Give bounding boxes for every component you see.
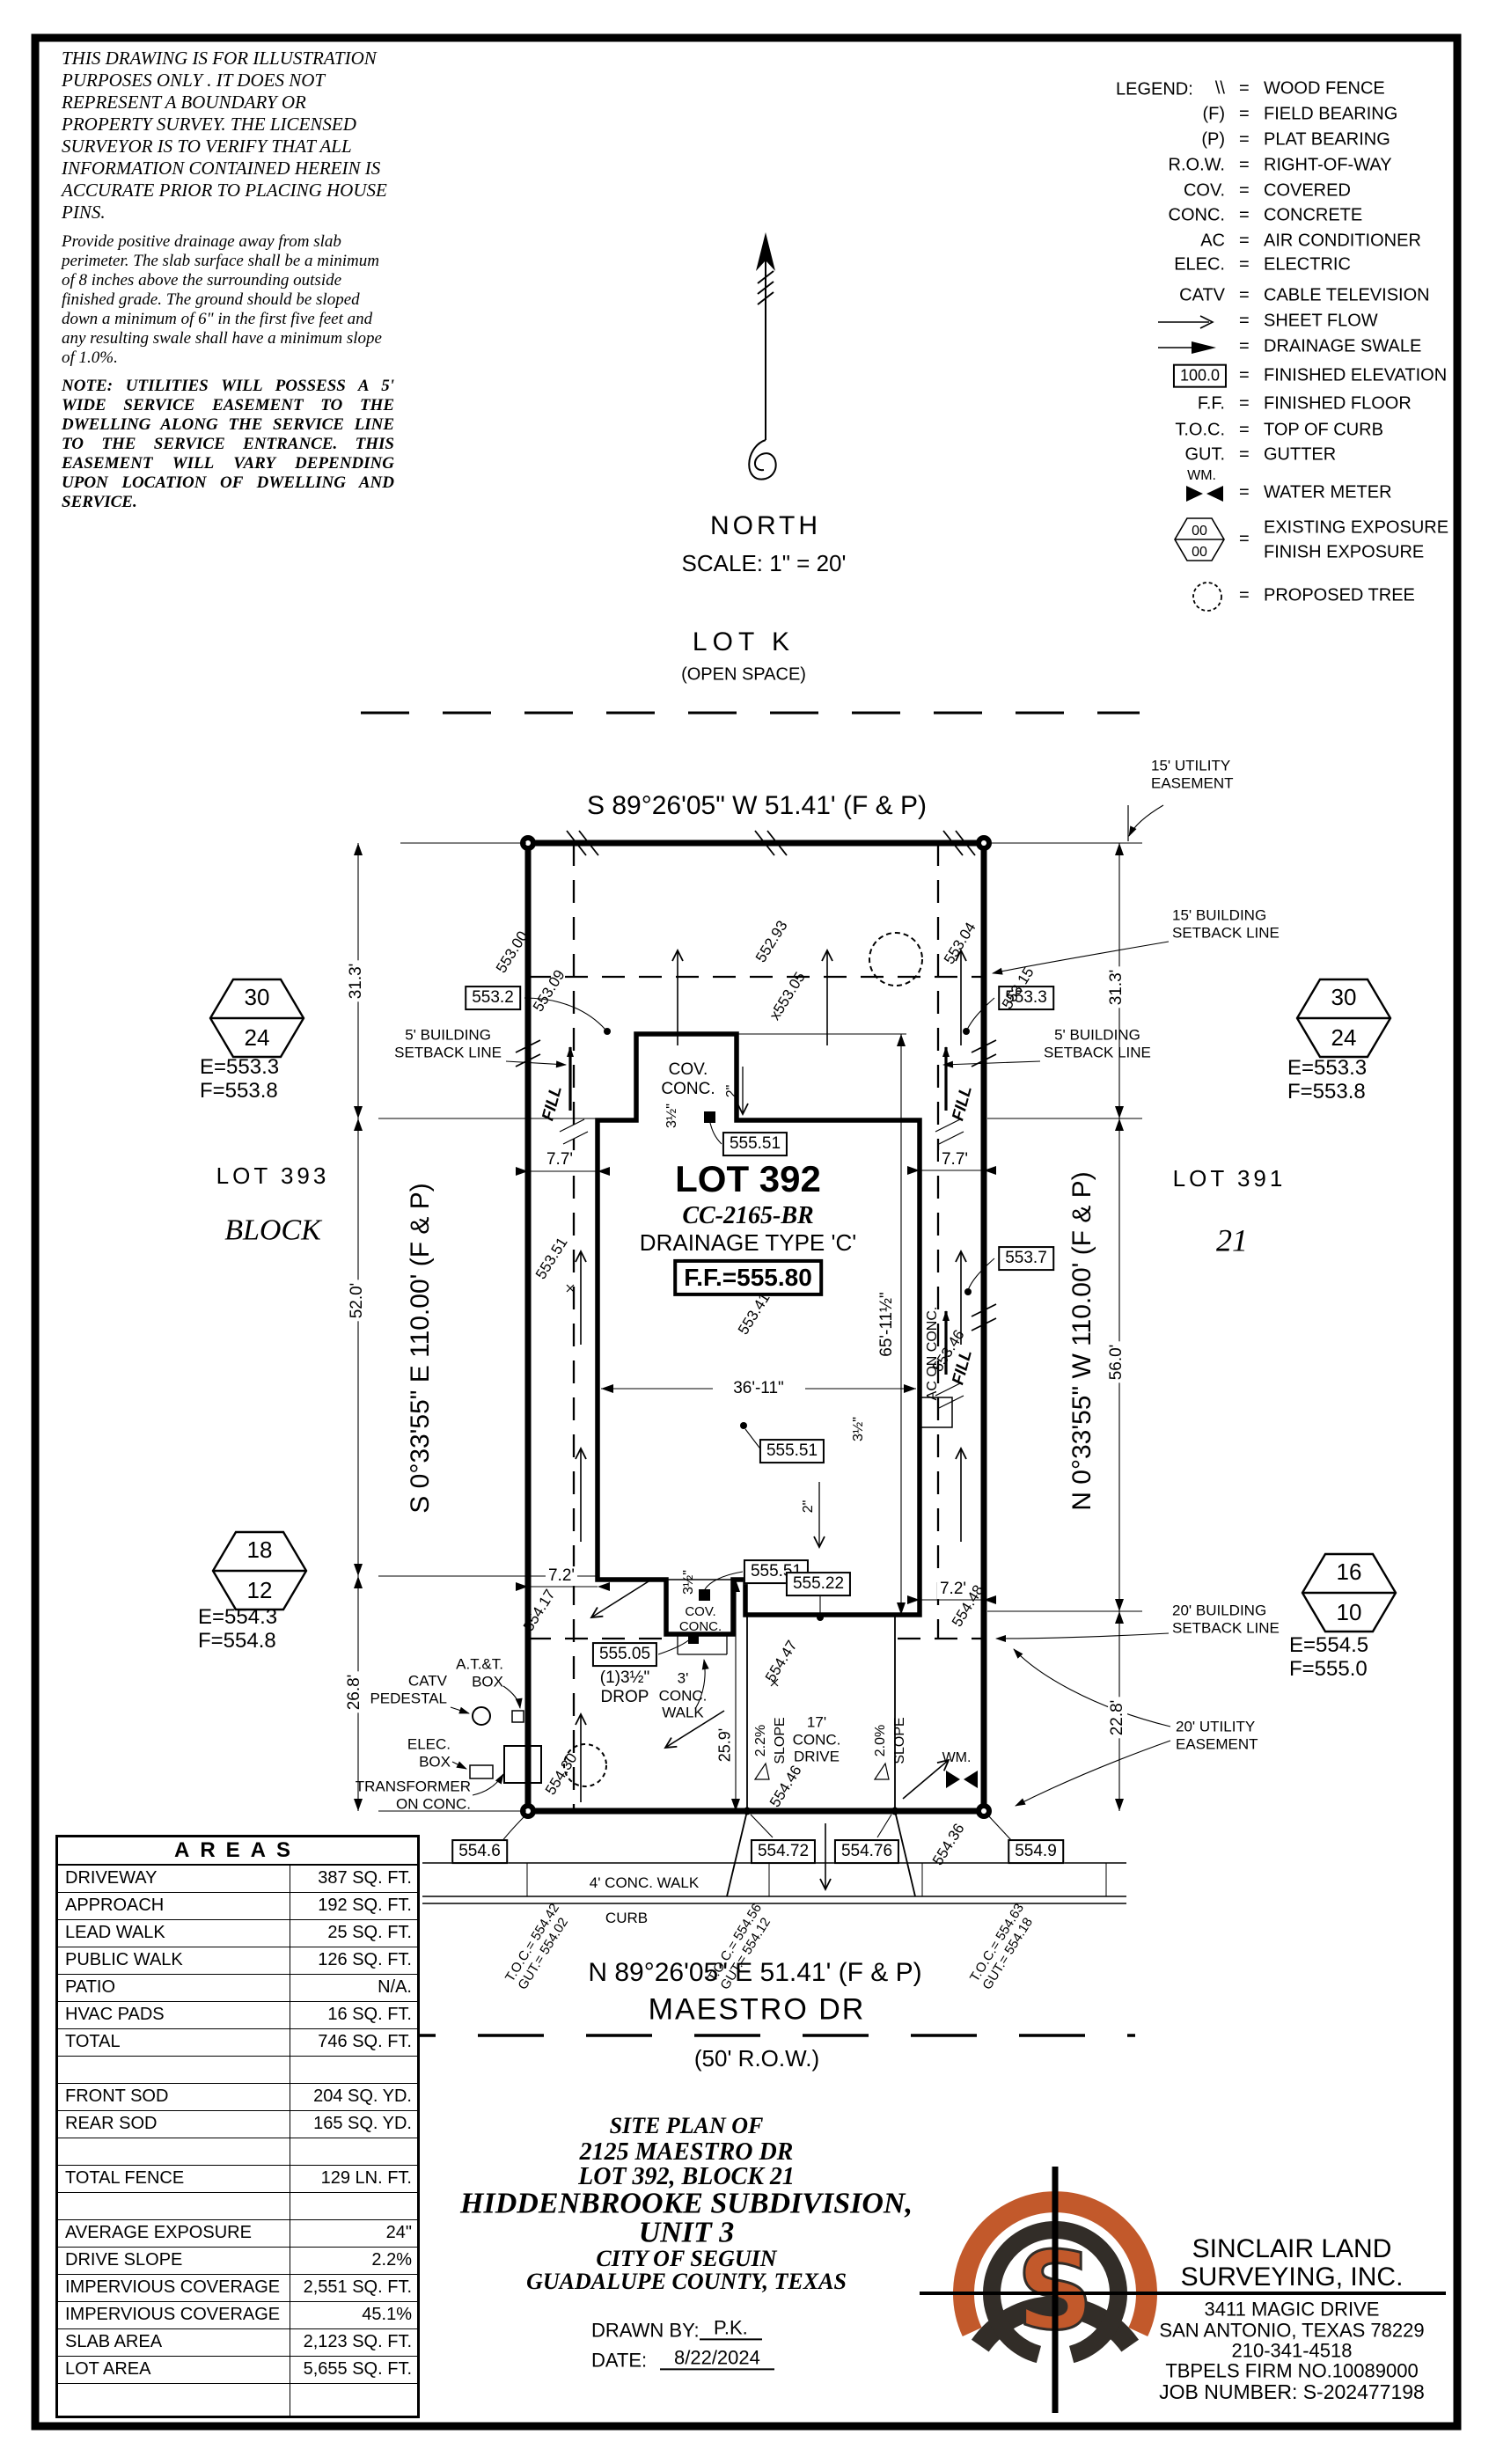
fill-label: FILL — [949, 1084, 976, 1123]
drainage-type: DRAINAGE TYPE 'C' — [640, 1230, 856, 1257]
callout-line: ELEC. — [407, 1735, 451, 1753]
block-label: BLOCK — [224, 1213, 321, 1247]
row-value: 16 SQ. FT. — [290, 2002, 417, 2028]
exposure-top: 16 — [1337, 1559, 1362, 1586]
legend-term: EXISTING EXPOSURE — [1264, 518, 1448, 539]
exposure-hexagon-icon: 00 00 — [1174, 517, 1225, 561]
spot-elevation: 554.17 — [520, 1587, 559, 1634]
existing-elevation: E=553.3 — [200, 1055, 279, 1080]
row-label: IMPERVIOUS COVERAGE — [58, 2275, 290, 2301]
spot-elevation: 552.93 — [752, 918, 791, 965]
exposure-top: 30 — [1331, 985, 1357, 1011]
dim-36-11: 36'-11" — [733, 1379, 784, 1398]
legend-symbol: GUT. — [1184, 445, 1225, 466]
toc-gut-group: T.O.C.= 554.63GUT.= 554.18 — [941, 1885, 1065, 2009]
drainage-note: Provide positive drainage away from slab… — [62, 232, 394, 368]
legend-symbol: ELEC. — [1174, 255, 1225, 275]
finished-elevation-box: 553.7 — [998, 1246, 1054, 1271]
date-label: DATE: — [591, 2349, 647, 2371]
catv-pedestal-callout: CATVPEDESTAL — [370, 1672, 447, 1706]
legend-symbol: COV. — [1184, 181, 1225, 202]
north-bearing: S 89°26'05" W 51.41' (F & P) — [587, 791, 927, 822]
table-row: REAR SOD165 SQ. YD. — [58, 2111, 417, 2138]
spot-elevation: 554.47 — [762, 1638, 801, 1685]
callout-line: TRANSFORMER — [356, 1778, 471, 1795]
row-label: FRONT SOD — [58, 2084, 290, 2110]
dim-22: 22.8' — [1108, 1698, 1127, 1739]
slope-20: 2.0% — [873, 1725, 889, 1756]
company-address-1: 3411 MAGIC DRIVE — [1205, 2298, 1380, 2320]
slope-22: 2.2% — [753, 1725, 769, 1756]
legend-symbol: (P) — [1201, 130, 1225, 150]
east-bearing: N 0°33'55" W 110.00' (F & P) — [1067, 1171, 1098, 1510]
dim-26: 26.8' — [345, 1672, 364, 1713]
table-row: TOTAL FENCE129 LN. FT. — [58, 2166, 417, 2193]
legend-term: CONCRETE — [1264, 206, 1362, 226]
title-unit: UNIT 3 — [639, 2215, 735, 2249]
north-arrow-icon — [739, 231, 792, 505]
callout-line: PEDESTAL — [370, 1690, 447, 1707]
conc-drive-17-callout: 17'CONC.DRIVE — [793, 1714, 841, 1766]
row-value — [290, 2384, 417, 2416]
transformer-callout: TRANSFORMERON CONC. — [356, 1778, 471, 1812]
company-logo: S — [950, 2182, 1161, 2404]
callout-line: CONC. — [661, 1080, 715, 1099]
house-footprint — [598, 1034, 920, 1644]
table-row: SLAB AREA2,123 SQ. FT. — [58, 2329, 417, 2357]
callout-line: A.T.&T. — [456, 1655, 503, 1673]
legend-eq: = — [1239, 366, 1250, 386]
sheet-flow-icon — [1155, 313, 1228, 331]
legend-symbol: AC — [1200, 231, 1225, 252]
callout-line: CATV — [370, 1672, 447, 1690]
row-label: IMPERVIOUS COVERAGE % — [58, 2302, 290, 2328]
callout-line: CONC. — [793, 1731, 841, 1749]
table-row: TOTAL746 SQ. FT. — [58, 2029, 417, 2057]
lot-391-label: LOT 391 — [1173, 1166, 1287, 1192]
utility-easement-15-callout: 15' UTILITYEASEMENT — [1151, 757, 1234, 791]
notes-block: THIS DRAWING IS FOR ILLUSTRATION PURPOSE… — [62, 48, 394, 521]
drawn-by-label: DRAWN BY: — [591, 2319, 700, 2341]
dim-3half: 3½" — [664, 1104, 680, 1128]
row-value: 746 SQ. FT. — [290, 2029, 417, 2056]
legend-term: RIGHT-OF-WAY — [1264, 156, 1392, 176]
exposure-top: 30 — [245, 985, 270, 1011]
row-value: 165 SQ. YD. — [290, 2111, 417, 2138]
legend-term: WOOD FENCE — [1264, 79, 1385, 99]
row-value: 5,655 SQ. FT. — [290, 2357, 417, 2383]
legend-term: FINISH EXPOSURE — [1264, 543, 1424, 563]
table-row: IMPERVIOUS COVERAGE %45.1% — [58, 2302, 417, 2329]
legend-eq: = — [1239, 79, 1250, 99]
conc-walk-4-label: 4' CONC. WALK — [590, 1874, 699, 1892]
row-label — [58, 2057, 290, 2083]
row-value: 25 SQ. FT. — [290, 1920, 417, 1947]
dim-72-left: 7.2' — [546, 1566, 577, 1586]
legend-eq: = — [1239, 231, 1250, 252]
legend-symbol: (F) — [1202, 105, 1225, 125]
legend-term: PLAT BEARING — [1264, 130, 1390, 150]
legend-eq: = — [1239, 312, 1250, 332]
north-label: NORTH — [710, 511, 821, 542]
areas-table: AREAS DRIVEWAY387 SQ. FT. APPROACH192 SQ… — [55, 1835, 420, 2418]
table-row: DRIVEWAY387 SQ. FT. — [58, 1866, 417, 1893]
row-value: 24" — [290, 2220, 417, 2247]
callout-line: BOX — [407, 1753, 451, 1771]
callout-line: 17' — [793, 1714, 841, 1732]
legend-symbol: R.O.W. — [1169, 156, 1225, 176]
date-value: 8/22/2024 — [660, 2346, 774, 2370]
legend-term: FIELD BEARING — [1264, 105, 1397, 125]
callout-line: COV. — [679, 1604, 722, 1619]
legend-eq: = — [1239, 181, 1250, 202]
finished-elevation-box: 555.51 — [722, 1132, 788, 1156]
row-value — [290, 2193, 417, 2219]
finish-elevation: F=553.8 — [200, 1079, 278, 1104]
row-value: 204 SQ. YD. — [290, 2084, 417, 2110]
row-value: 45.1% — [290, 2302, 417, 2328]
dim-2in: 2" — [724, 1085, 740, 1098]
finish-elevation: F=554.8 — [198, 1629, 276, 1654]
callout-line: WALK — [659, 1705, 708, 1722]
exposure-bottom: 24 — [245, 1025, 270, 1052]
callout-line: 5' BUILDING — [394, 1026, 502, 1044]
company-firm-number: TBPELS FIRM NO.10089000 — [1165, 2359, 1418, 2381]
finished-elevation-box: 555.51 — [759, 1439, 825, 1463]
callout-line: 20' BUILDING — [1172, 1602, 1280, 1619]
finished-floor-elevation: F.F.=555.80 — [673, 1259, 823, 1296]
title-county: GUADALUPE COUNTY, TEXAS — [526, 2269, 847, 2295]
row-label: REAR SOD — [58, 2111, 290, 2138]
finish-elevation: F=553.8 — [1287, 1080, 1366, 1104]
callout-line: DROP — [600, 1688, 649, 1707]
table-row: PATION/A. — [58, 1975, 417, 2002]
existing-elevation: E=553.3 — [1287, 1056, 1367, 1081]
row-value — [290, 2057, 417, 2083]
company-phone: 210-341-4518 — [1231, 2339, 1352, 2361]
callout-line: 15' BUILDING — [1172, 906, 1280, 924]
dim-65-11: 65'-11½" — [877, 1289, 897, 1359]
row-label: LOT AREA — [58, 2357, 290, 2383]
spot-elevation: x553.05 — [766, 969, 810, 1023]
legend-term: CABLE TELEVISION — [1264, 286, 1430, 306]
dim-2in: 2" — [801, 1500, 817, 1514]
dim-77-right: 7.7' — [939, 1150, 971, 1170]
dim-3half: 3½" — [851, 1417, 867, 1441]
row-label: LEAD WALK — [58, 1920, 290, 1947]
finished-elevation-box: 553.2 — [465, 986, 521, 1010]
legend-term: ELECTRIC — [1264, 255, 1351, 275]
open-space-label: (OPEN SPACE) — [681, 665, 806, 686]
elec-box-callout: ELEC.BOX — [407, 1735, 451, 1770]
legend-symbol: T.O.C. — [1175, 421, 1225, 441]
legend-eq: = — [1239, 156, 1250, 176]
legend-eq: = — [1239, 530, 1250, 550]
legend-eq: = — [1239, 105, 1250, 125]
utility-note: NOTE: UTILITIES WILL POSSESS A 5' WIDE S… — [62, 377, 394, 512]
exposure-bottom: 24 — [1331, 1025, 1357, 1052]
exposure-bottom: 12 — [247, 1578, 273, 1604]
row-value: 129 LN. FT. — [290, 2166, 417, 2192]
setback-5-right-callout: 5' BUILDINGSETBACK LINE — [1044, 1026, 1151, 1060]
callout-line: SETBACK LINE — [394, 1044, 502, 1061]
callout-line: EASEMENT — [1176, 1735, 1258, 1753]
water-meter-icon — [946, 1771, 978, 1788]
row-label — [58, 2384, 290, 2416]
table-row: APPROACH192 SQ. FT. — [58, 1893, 417, 1920]
slope-word: SLOPE — [892, 1717, 908, 1764]
finished-elevation-box: 554.72 — [751, 1839, 816, 1864]
scale-label: SCALE: 1" = 20' — [682, 551, 847, 577]
table-row: LOT AREA5,655 SQ. FT. — [58, 2357, 417, 2384]
covered-concrete-bottom: COV.CONC. — [679, 1604, 722, 1635]
lot-k-label: LOT K — [693, 627, 795, 658]
toc-gut-group: T.O.C.= 554.56GUT.= 554.12 — [678, 1885, 803, 2009]
legend-eq: = — [1239, 483, 1250, 503]
legend-term: AIR CONDITIONER — [1264, 231, 1421, 252]
block-21-label: 21 — [1216, 1222, 1248, 1258]
callout-line: 15' UTILITY — [1151, 757, 1234, 774]
logo-letter: S — [1016, 2229, 1094, 2354]
callout-line: (1)3½" — [600, 1668, 649, 1688]
row-label: APPROACH — [58, 1893, 290, 1919]
legend-symbol: CATV — [1179, 286, 1225, 306]
callout-line: EASEMENT — [1151, 774, 1234, 792]
row-label: HVAC PADS — [58, 2002, 290, 2028]
finished-elevation-box: 555.05 — [592, 1642, 657, 1667]
legend-symbol: F.F. — [1198, 394, 1225, 414]
dim-3half: 3½" — [681, 1570, 697, 1595]
toc-gut-group: T.O.C.= 554.42GUT.= 554.02 — [476, 1885, 600, 2009]
legend-term: DRAINAGE SWALE — [1264, 337, 1421, 357]
legend-term: PROPOSED TREE — [1264, 586, 1415, 606]
callout-line: COV. — [661, 1060, 715, 1080]
callout-line: 5' BUILDING — [1044, 1026, 1151, 1044]
row-value: N/A. — [290, 1975, 417, 2001]
lot-cc-number: CC-2165-BR — [682, 1202, 813, 1230]
table-row: PUBLIC WALK126 SQ. FT. — [58, 1947, 417, 1975]
legend-term: SHEET FLOW — [1264, 312, 1378, 332]
table-row: LEAD WALK25 SQ. FT. — [58, 1920, 417, 1947]
site-plan-sheet: THIS DRAWING IS FOR ILLUSTRATION PURPOSE… — [0, 0, 1496, 2464]
existing-elevation: E=554.3 — [198, 1605, 277, 1630]
row-label: TOTAL — [58, 2029, 290, 2056]
table-row: DRIVE SLOPE2.2% — [58, 2248, 417, 2275]
callout-line: ON CONC. — [356, 1795, 471, 1813]
drawn-by-value: P.K. — [700, 2316, 762, 2340]
job-number: JOB NUMBER: S-202477198 — [1159, 2380, 1425, 2403]
row-label: DRIVEWAY — [58, 1866, 290, 1892]
legend-eq: = — [1239, 206, 1250, 226]
callout-line: 3' — [659, 1670, 708, 1688]
svg-text:00: 00 — [1192, 545, 1207, 560]
finish-elevation: F=555.0 — [1289, 1657, 1368, 1682]
west-bearing: S 0°33'55" E 110.00' (F & P) — [406, 1183, 436, 1513]
row-value: 2.2% — [290, 2248, 417, 2274]
ac-pad — [920, 1397, 952, 1427]
drainage-swale-icon — [1155, 339, 1228, 356]
setback-15-callout: 15' BUILDINGSETBACK LINE — [1172, 906, 1280, 941]
dim-25-9: 25.9' — [716, 1726, 735, 1764]
legend-symbol: CONC. — [1169, 206, 1225, 226]
row-label: DRIVE SLOPE — [58, 2248, 290, 2274]
legend-eq: = — [1239, 445, 1250, 466]
att-box-callout: A.T.&T.BOX — [456, 1655, 503, 1690]
callout-line: CONC. — [679, 1619, 722, 1634]
utility-fixtures — [470, 1707, 541, 1783]
proposed-tree-icon — [1190, 579, 1225, 614]
callout-line: BOX — [456, 1673, 503, 1690]
spot-elevation: 553.04 — [941, 920, 979, 967]
proposed-tree — [869, 933, 922, 986]
callout-line: SETBACK LINE — [1172, 1619, 1280, 1637]
company-address-2: SAN ANTONIO, TEXAS 78229 — [1159, 2319, 1424, 2341]
svg-text:00: 00 — [1192, 524, 1207, 539]
setback-20-callout: 20' BUILDINGSETBACK LINE — [1172, 1602, 1280, 1636]
finished-elevation-box: 555.22 — [786, 1572, 851, 1596]
row-value: 2,123 SQ. FT. — [290, 2329, 417, 2356]
legend-term: TOP OF CURB — [1264, 421, 1383, 441]
company-name-1: SINCLAIR LAND — [1192, 2234, 1392, 2265]
legend-eq: = — [1239, 130, 1250, 150]
leader-lines — [451, 805, 1170, 1853]
table-row — [58, 2193, 417, 2220]
legend-term: FINISHED FLOOR — [1264, 394, 1412, 414]
legend-symbol: \\ — [1215, 79, 1225, 99]
callout-line: CONC. — [659, 1687, 708, 1705]
company-name-2: SURVEYING, INC. — [1181, 2262, 1404, 2293]
legend-eq: = — [1239, 586, 1250, 606]
row-label: AVERAGE EXPOSURE — [58, 2220, 290, 2247]
callout-line: DRIVE — [793, 1749, 841, 1766]
row-label — [58, 2193, 290, 2219]
row-value: 2,551 SQ. FT. — [290, 2275, 417, 2301]
legend-term: FINISHED ELEVATION — [1264, 366, 1447, 386]
row-value: 126 SQ. FT. — [290, 1947, 417, 1974]
row-label: TOTAL FENCE — [58, 2166, 290, 2192]
table-row — [58, 2384, 417, 2416]
table-row — [58, 2057, 417, 2084]
drop-callout: (1)3½"DROP — [600, 1668, 649, 1707]
water-meter-icon — [1184, 484, 1225, 503]
callout-line: 20' UTILITY — [1176, 1718, 1258, 1735]
finished-elevation-box: 554.6 — [451, 1839, 508, 1864]
title-line: SITE PLAN OF — [610, 2113, 764, 2139]
row-value: 387 SQ. FT. — [290, 1866, 417, 1892]
dim-56: 56.0' — [1107, 1342, 1126, 1383]
conc-walk-3-callout: 3'CONC.WALK — [659, 1670, 708, 1722]
utility-easement-20-callout: 20' UTILITYEASEMENT — [1176, 1718, 1258, 1752]
row-label: SLAB AREA — [58, 2329, 290, 2356]
table-row — [58, 2138, 417, 2166]
wm-label: WM. — [942, 1750, 972, 1766]
legend-term: GUTTER — [1264, 445, 1336, 466]
exposure-bottom: 10 — [1337, 1600, 1362, 1626]
table-row: IMPERVIOUS COVERAGE2,551 SQ. FT. — [58, 2275, 417, 2302]
table-row: FRONT SOD204 SQ. YD. — [58, 2084, 417, 2111]
legend-eq: = — [1239, 421, 1250, 441]
spot-elevation: 553.51 — [532, 1235, 571, 1282]
setback-5-left-callout: 5' BUILDINGSETBACK LINE — [394, 1026, 502, 1060]
spot-elevation: 554.46 — [766, 1763, 805, 1810]
finished-elevation-box: 554.76 — [834, 1839, 899, 1864]
table-row: HVAC PADS16 SQ. FT. — [58, 2002, 417, 2029]
legend-eq: = — [1239, 337, 1250, 357]
legend-symbol: WM. — [1187, 468, 1216, 484]
table-row: AVERAGE EXPOSURE24" — [58, 2220, 417, 2248]
fill-label: FILL — [539, 1084, 566, 1123]
dim-31-left: 31.3' — [347, 961, 366, 1002]
finished-elevation-box: 554.9 — [1008, 1839, 1064, 1864]
spot-elevation: 554.30 — [542, 1750, 581, 1798]
legend-eq: = — [1239, 255, 1250, 275]
row-value — [290, 2138, 417, 2165]
row-label: PUBLIC WALK — [58, 1947, 290, 1974]
areas-table-title: AREAS — [58, 1837, 417, 1866]
dim-77-left: 7.7' — [544, 1150, 576, 1170]
legend-eq: = — [1239, 394, 1250, 414]
row-value: 192 SQ. FT. — [290, 1893, 417, 1919]
street-row: (50' R.O.W.) — [694, 2046, 819, 2072]
lot-number: LOT 392 — [675, 1158, 821, 1200]
legend-eq: = — [1239, 286, 1250, 306]
covered-concrete-top: COV.CONC. — [661, 1060, 715, 1099]
finished-elevation-symbol: 100.0 — [1173, 364, 1227, 388]
callout-line: SETBACK LINE — [1044, 1044, 1151, 1061]
dim-52: 52.0' — [348, 1280, 367, 1322]
existing-elevation: E=554.5 — [1289, 1633, 1368, 1658]
legend-title: LEGEND: — [1116, 80, 1193, 100]
slope-word: SLOPE — [773, 1717, 788, 1764]
dim-31-right: 31.3' — [1107, 967, 1126, 1008]
legend-term: WATER METER — [1264, 483, 1392, 503]
lot-393-label: LOT 393 — [216, 1163, 330, 1190]
disclaimer-note: THIS DRAWING IS FOR ILLUSTRATION PURPOSE… — [62, 48, 394, 224]
spot-elevation: 553.41 — [735, 1290, 774, 1338]
callout-line: SETBACK LINE — [1172, 924, 1280, 942]
spot-elevation: 553.00 — [493, 928, 532, 976]
row-label: PATIO — [58, 1975, 290, 2001]
spot-elevation: 553.09 — [530, 967, 568, 1015]
legend-term: COVERED — [1264, 181, 1351, 202]
curb-label: CURB — [605, 1910, 648, 1927]
row-label — [58, 2138, 290, 2165]
exposure-top: 18 — [247, 1537, 273, 1564]
spot-elevation: 554.36 — [929, 1821, 968, 1868]
